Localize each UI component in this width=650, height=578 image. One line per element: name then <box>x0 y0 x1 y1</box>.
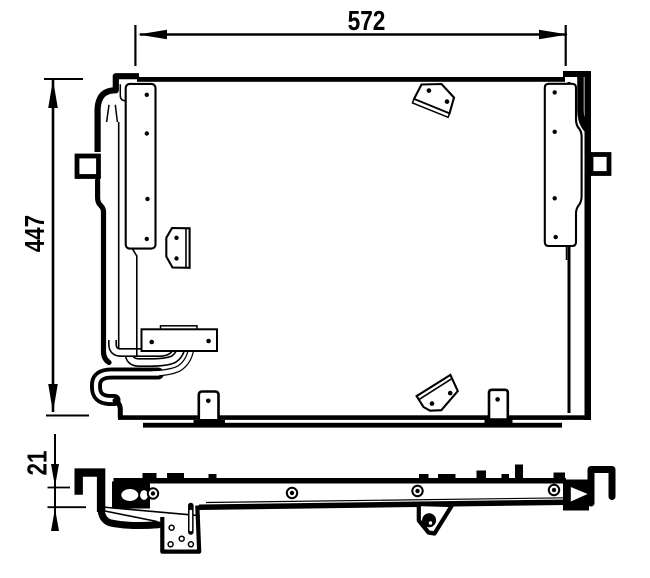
svg-text:21: 21 <box>22 451 53 476</box>
svg-text:447: 447 <box>20 215 51 252</box>
svg-text:572: 572 <box>348 6 386 37</box>
